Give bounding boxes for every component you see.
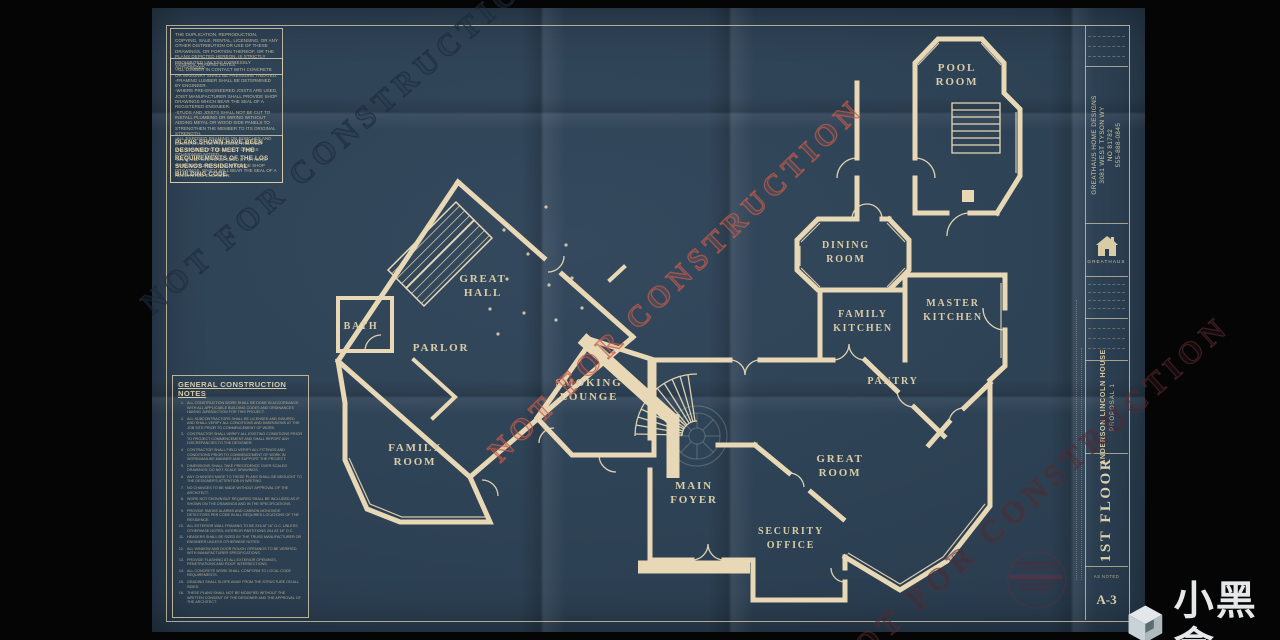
general-construction-notes-box: GENERAL CONSTRUCTION NOTES 1.ALL CONSTRU… [172, 375, 309, 618]
company-address: 3081 WEST TYSON WY [1099, 95, 1107, 195]
project-name: ANDERSON LINCOLN HOUSE [1098, 349, 1107, 465]
titleblock-microtext [1088, 328, 1125, 329]
pool-stairs [952, 103, 1000, 153]
greathaus-house-icon [1095, 235, 1119, 257]
titleblock-microtext [1088, 284, 1125, 285]
greathaus-logo-text: GREATHAUS [1087, 259, 1125, 264]
margin-microtext-column [1076, 300, 1077, 580]
room-label-pool-room: POOL ROOM [936, 61, 979, 89]
room-label-security-office: SECURITY OFFICE [758, 525, 824, 553]
building-code-text: PLANS SHOWN HAVE BEEN DESIGNED TO MEET T… [175, 139, 278, 179]
titleblock-company-cell: GREATHAUS HOME DESIGNS 3081 WEST TYSON W… [1085, 66, 1128, 223]
construction-notes-header: GENERAL CONSTRUCTION NOTES [178, 380, 304, 398]
room-label-dining-room: DINING ROOM [822, 239, 870, 267]
blueprint-screenshot: GREAT HALL PARLOR BATH SMOKING LOUNGE FA… [0, 0, 1280, 640]
room-label-great-room: GREAT ROOM [816, 452, 863, 480]
sheet-title: 1ST FLOOR [1098, 457, 1115, 562]
construction-note-item: 10.ALL EXTERIOR WALL FRAMING TO BE 2X6 A… [178, 524, 303, 533]
titleblock-microtext [1088, 36, 1125, 37]
stamp-ring [1007, 551, 1067, 609]
titleblock-microtext [1088, 338, 1125, 339]
fixtures [962, 190, 974, 202]
box-logo-icon [1126, 600, 1165, 640]
construction-note-item: 13.PROVIDE FLASHING AT ALL EXTERIOR OPEN… [178, 558, 303, 567]
titleblock-microtext [1088, 56, 1125, 57]
xiaoheihe-watermark: 小黑盒 [1126, 578, 1280, 640]
room-label-great-hall: GREAT HALL [459, 272, 506, 300]
titleblock-project-cell: ANDERSON LINCOLN HOUSE PROPOSAL 1 [1085, 360, 1128, 453]
construction-note-item: 7.NO CHANGES TO BE MADE WITHOUT APPROVAL… [178, 486, 303, 495]
badge-text: 小黑盒 [1174, 578, 1280, 640]
blueprint-paper: GREAT HALL PARLOR BATH SMOKING LOUNGE FA… [152, 8, 1145, 632]
titleblock-microtext [1088, 308, 1125, 309]
building-code-notice-box: PLANS SHOWN HAVE BEEN DESIGNED TO MEET T… [170, 135, 283, 183]
construction-note-item: 12.ALL WINDOW AND DOOR ROUGH OPENINGS TO… [178, 547, 303, 556]
construction-note-item: 2.ALL SUBCONTRACTORS SHALL BE LICENSED A… [178, 417, 303, 431]
construction-note-item: 14.ALL CONCRETE WORK SHALL CONFORM TO LO… [178, 569, 303, 578]
construction-note-item: 9.PROVIDE SMOKE ALARMS AND CARBON MONOXI… [178, 509, 303, 523]
room-label-family-kitchen: FAMILY KITCHEN [833, 308, 893, 336]
approval-stamp [1004, 550, 1068, 608]
margin-microtext-column [1081, 348, 1082, 580]
construction-notes-list: 1.ALL CONSTRUCTION WORK SHALL BE DONE IN… [177, 401, 304, 605]
titleblock-microtext [1088, 292, 1125, 293]
construction-note-item: 8.WORK NOT SHOWN BUT REQUIRED SHALL BE I… [178, 497, 303, 506]
construction-note-item: 6.ANY CHANGES MADE TO THESE PLANS SHALL … [178, 475, 303, 484]
scale-value: AS NOTED [1085, 574, 1128, 579]
construction-note-item: 16.THESE PLANS SHALL NOT BE MODIFIED WIT… [178, 591, 303, 605]
titleblock-rule [1085, 318, 1128, 319]
titleblock-rule [1085, 276, 1128, 277]
construction-note-item: 3.CONTRACTOR SHALL VERIFY ALL EXISTING C… [178, 432, 303, 446]
room-label-bath: BATH [344, 320, 379, 334]
room-label-master-kitchen: MASTER KITCHEN [923, 297, 983, 325]
room-label-parlor: PARLOR [413, 341, 469, 355]
compass-emblem [667, 406, 727, 466]
hall-dots [488, 205, 583, 335]
titleblock-microtext [1088, 46, 1125, 47]
company-phone: 555-888-0845 [1115, 95, 1123, 195]
sheet-number: A-3 [1085, 592, 1128, 608]
room-label-family-room: FAMILY ROOM [388, 441, 442, 469]
walls-layer [338, 39, 1020, 600]
titleblock-sheet-title-cell: 1ST FLOOR [1085, 453, 1128, 566]
titleblock-rule [1085, 566, 1128, 567]
titleblock-microtext [1088, 300, 1125, 301]
room-label-main-foyer: MAIN FOYER [670, 479, 718, 507]
proposal-label: PROPOSAL 1 [1110, 349, 1116, 465]
construction-note-item: 11.HEADERS SHALL BE SIZED BY THE TRUSS M… [178, 535, 303, 544]
construction-note-item: 15.GRADING SHALL SLOPE AWAY FROM THE STR… [178, 580, 303, 589]
room-label-smoking-lounge: SMOKING LOUNGE [556, 376, 623, 404]
construction-note-item: 4.CONTRACTOR SHALL FIELD VERIFY ALL FITT… [178, 448, 303, 462]
room-label-pantry: PANTRY [867, 375, 918, 389]
construction-note-item: 5.DIMENSIONS SHALL TAKE PRECEDENCE OVER … [178, 464, 303, 473]
titleblock-logo-cell: GREATHAUS [1085, 223, 1128, 276]
construction-note-item: 1.ALL CONSTRUCTION WORK SHALL BE DONE IN… [178, 401, 303, 415]
company-info: GREATHAUS HOME DESIGNS 3081 WEST TYSON W… [1091, 95, 1123, 195]
company-address2: NO 81782 [1107, 95, 1115, 195]
company-name: GREATHAUS HOME DESIGNS [1091, 95, 1099, 195]
